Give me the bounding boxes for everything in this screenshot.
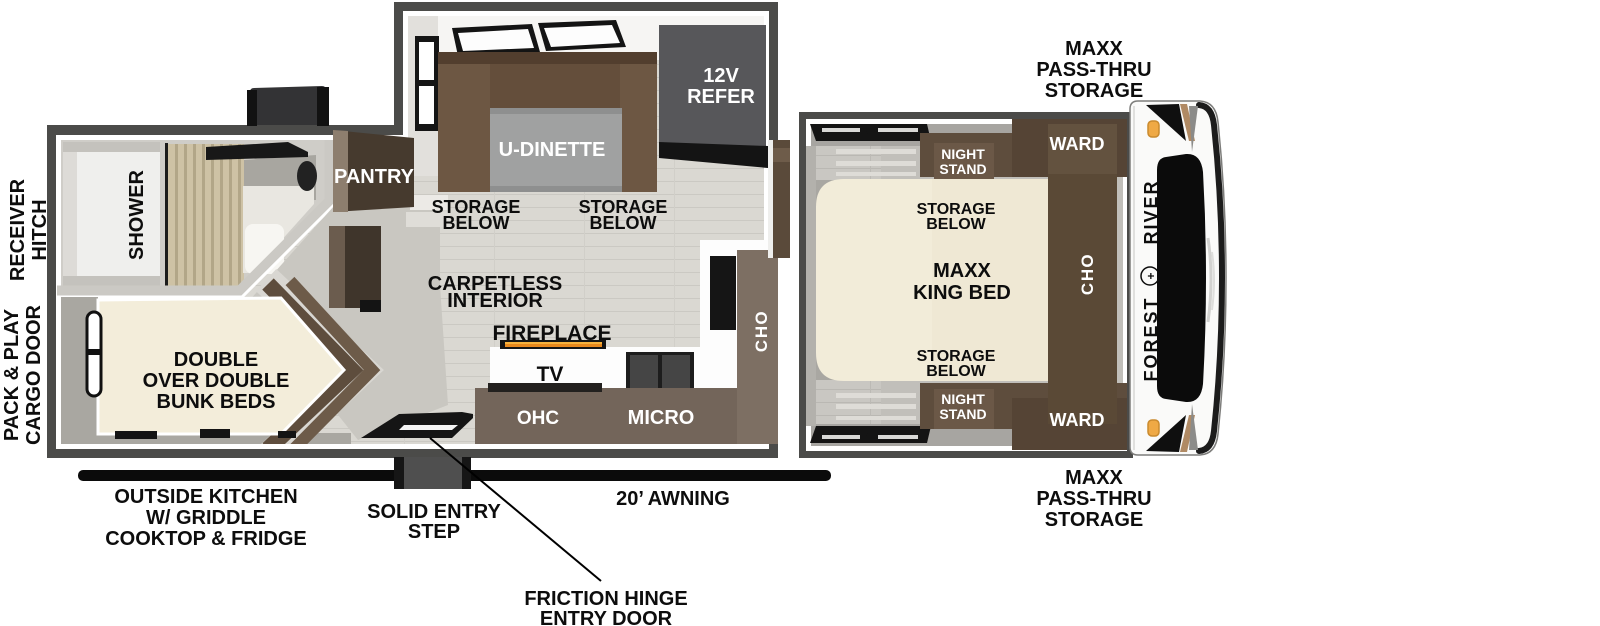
svg-text:TV: TV bbox=[537, 363, 564, 386]
svg-text:ENTRY DOOR: ENTRY DOOR bbox=[540, 608, 673, 626]
svg-text:FRICTION HINGE: FRICTION HINGE bbox=[524, 588, 687, 610]
svg-text:MICRO: MICRO bbox=[628, 407, 695, 429]
svg-text:PANTRY: PANTRY bbox=[334, 166, 415, 188]
svg-text:U-DINETTE: U-DINETTE bbox=[499, 139, 606, 161]
svg-text:C: C bbox=[752, 340, 771, 352]
svg-text:O: O bbox=[1078, 254, 1097, 267]
svg-text:C: C bbox=[1078, 283, 1097, 295]
svg-text:PACK & PLAY: PACK & PLAY bbox=[1, 308, 23, 441]
svg-text:FIREPLACE: FIREPLACE bbox=[492, 322, 611, 345]
svg-text:H: H bbox=[1078, 269, 1097, 281]
svg-text:PASS-THRU: PASS-THRU bbox=[1036, 488, 1151, 510]
svg-text:W/ GRIDDLE: W/ GRIDDLE bbox=[146, 507, 266, 529]
svg-text:PASS-THRU: PASS-THRU bbox=[1036, 59, 1151, 81]
svg-text:STAND: STAND bbox=[939, 161, 986, 177]
svg-text:OVER DOUBLE: OVER DOUBLE bbox=[143, 370, 290, 392]
svg-text:MAXX: MAXX bbox=[933, 260, 991, 282]
svg-text:WARD: WARD bbox=[1050, 410, 1105, 430]
svg-text:MAXX: MAXX bbox=[1065, 38, 1123, 60]
svg-text:O: O bbox=[752, 311, 771, 324]
svg-text:NIGHT: NIGHT bbox=[941, 391, 985, 407]
svg-text:HITCH: HITCH bbox=[29, 199, 51, 260]
svg-text:SOLID ENTRY: SOLID ENTRY bbox=[367, 501, 501, 523]
svg-text:CARGO DOOR: CARGO DOOR bbox=[23, 304, 45, 445]
svg-text:H: H bbox=[752, 326, 771, 338]
svg-text:BELOW: BELOW bbox=[926, 216, 986, 233]
svg-text:OHC: OHC bbox=[517, 408, 560, 429]
svg-text:BELOW: BELOW bbox=[590, 213, 657, 233]
svg-text:REFER: REFER bbox=[687, 86, 755, 108]
svg-text:FOREST: FOREST bbox=[1141, 296, 1161, 381]
svg-text:20’ AWNING: 20’ AWNING bbox=[616, 488, 730, 510]
svg-text:BELOW: BELOW bbox=[443, 213, 510, 233]
svg-text:STEP: STEP bbox=[408, 521, 460, 543]
svg-text:DOUBLE: DOUBLE bbox=[174, 349, 258, 371]
svg-text:KING BED: KING BED bbox=[913, 282, 1011, 304]
svg-text:12V: 12V bbox=[703, 65, 739, 87]
svg-text:OUTSIDE KITCHEN: OUTSIDE KITCHEN bbox=[114, 486, 297, 508]
svg-text:INTERIOR: INTERIOR bbox=[447, 290, 543, 312]
svg-text:BUNK BEDS: BUNK BEDS bbox=[157, 391, 276, 413]
svg-text:+: + bbox=[1144, 272, 1158, 279]
svg-text:COOKTOP & FRIDGE: COOKTOP & FRIDGE bbox=[105, 528, 307, 550]
svg-text:STORAGE: STORAGE bbox=[1045, 509, 1144, 531]
svg-text:STAND: STAND bbox=[939, 406, 986, 422]
svg-text:WARD: WARD bbox=[1050, 134, 1105, 154]
svg-text:SHOWER: SHOWER bbox=[126, 169, 148, 260]
svg-text:RECEIVER: RECEIVER bbox=[7, 178, 29, 281]
svg-text:BELOW: BELOW bbox=[926, 363, 986, 380]
svg-text:MAXX: MAXX bbox=[1065, 467, 1123, 489]
svg-text:RIVER: RIVER bbox=[1141, 179, 1161, 244]
svg-text:NIGHT: NIGHT bbox=[941, 146, 985, 162]
svg-text:STORAGE: STORAGE bbox=[1045, 80, 1144, 102]
